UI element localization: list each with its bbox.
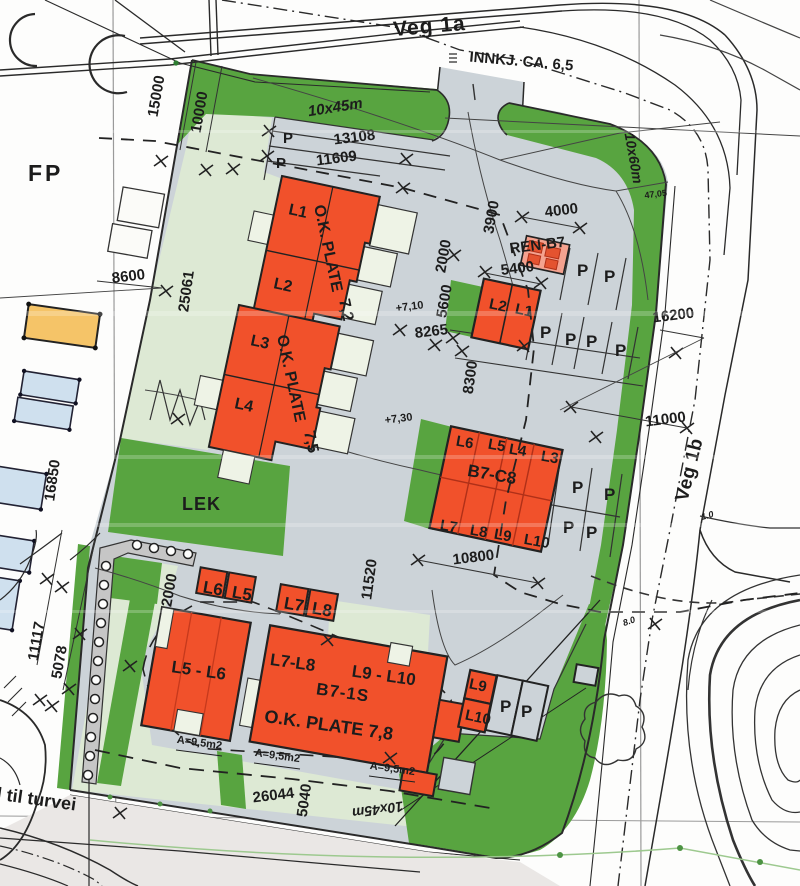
svg-text:P: P [572,478,583,497]
svg-text:P: P [500,697,511,716]
svg-text:P: P [276,155,286,172]
svg-text:L8: L8 [311,599,334,621]
svg-text:P: P [604,267,615,286]
svg-text:L9: L9 [493,526,513,546]
svg-text:P: P [577,261,588,280]
svg-text:P: P [604,485,615,504]
svg-text:P: P [586,332,597,351]
svg-text:P: P [540,323,551,342]
svg-text:L5: L5 [231,583,254,605]
svg-text:P: P [563,518,574,537]
svg-text:L9: L9 [468,675,489,695]
svg-text:L5: L5 [487,436,507,456]
svg-text:L6: L6 [202,578,225,600]
svg-text:L1: L1 [514,300,535,320]
svg-text:L6: L6 [455,433,475,453]
svg-text:LEK: LEK [182,494,221,514]
svg-text:P: P [615,341,626,360]
svg-text:P: P [521,702,532,721]
svg-text:P: P [565,330,576,349]
svg-text:FP: FP [28,160,63,186]
